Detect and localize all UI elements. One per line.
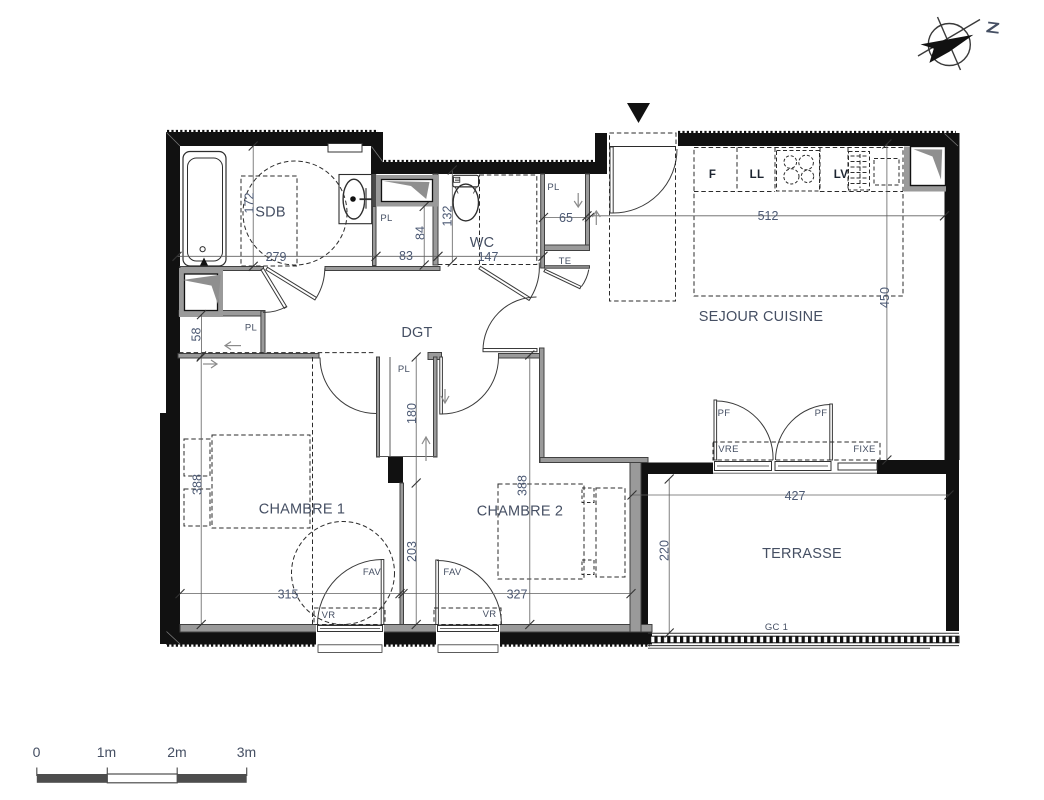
svg-text:LV: LV (834, 169, 848, 181)
svg-text:83: 83 (399, 249, 413, 263)
svg-text:147: 147 (478, 250, 499, 264)
svg-text:WC: WC (470, 235, 495, 251)
svg-text:FIXE: FIXE (853, 444, 875, 455)
svg-text:GC 1: GC 1 (765, 622, 788, 633)
svg-text:279: 279 (266, 250, 287, 264)
svg-text:TERRASSE: TERRASSE (762, 546, 842, 562)
svg-text:CHAMBRE 1: CHAMBRE 1 (259, 502, 345, 518)
svg-text:CHAMBRE 2: CHAMBRE 2 (477, 504, 563, 520)
svg-text:388: 388 (516, 475, 530, 496)
svg-text:DGT: DGT (401, 325, 432, 341)
svg-text:450: 450 (878, 287, 892, 308)
svg-text:SDB: SDB (255, 205, 285, 221)
svg-text:PL: PL (547, 182, 559, 193)
svg-text:172: 172 (243, 193, 257, 214)
svg-text:315: 315 (278, 588, 299, 602)
svg-text:SEJOUR CUISINE: SEJOUR CUISINE (699, 309, 824, 325)
svg-text:FAV: FAV (363, 567, 382, 578)
svg-text:3m: 3m (237, 744, 256, 760)
svg-text:Z: Z (985, 19, 1001, 37)
svg-text:65: 65 (559, 211, 573, 225)
svg-text:PL: PL (245, 323, 257, 334)
svg-text:84: 84 (414, 226, 428, 240)
svg-text:427: 427 (785, 489, 806, 503)
svg-text:388: 388 (191, 474, 205, 495)
svg-text:VR: VR (483, 609, 497, 620)
svg-text:512: 512 (758, 209, 779, 223)
svg-text:58: 58 (190, 328, 204, 342)
svg-text:132: 132 (441, 206, 455, 227)
svg-text:F: F (709, 169, 716, 181)
svg-text:2m: 2m (167, 744, 186, 760)
svg-text:327: 327 (507, 588, 528, 602)
svg-text:0: 0 (33, 744, 41, 760)
svg-text:220: 220 (658, 540, 672, 561)
svg-text:PL: PL (398, 364, 410, 375)
svg-text:FAV: FAV (443, 567, 462, 578)
svg-text:VRE: VRE (718, 444, 738, 455)
svg-text:1m: 1m (97, 744, 116, 760)
svg-text:PF: PF (815, 408, 828, 419)
svg-text:PF: PF (718, 408, 731, 419)
svg-text:PL: PL (380, 213, 392, 224)
svg-text:203: 203 (405, 541, 419, 562)
svg-text:LL: LL (750, 169, 765, 181)
svg-text:VR: VR (322, 610, 336, 621)
svg-text:180: 180 (405, 403, 419, 424)
svg-text:TE: TE (559, 256, 572, 267)
